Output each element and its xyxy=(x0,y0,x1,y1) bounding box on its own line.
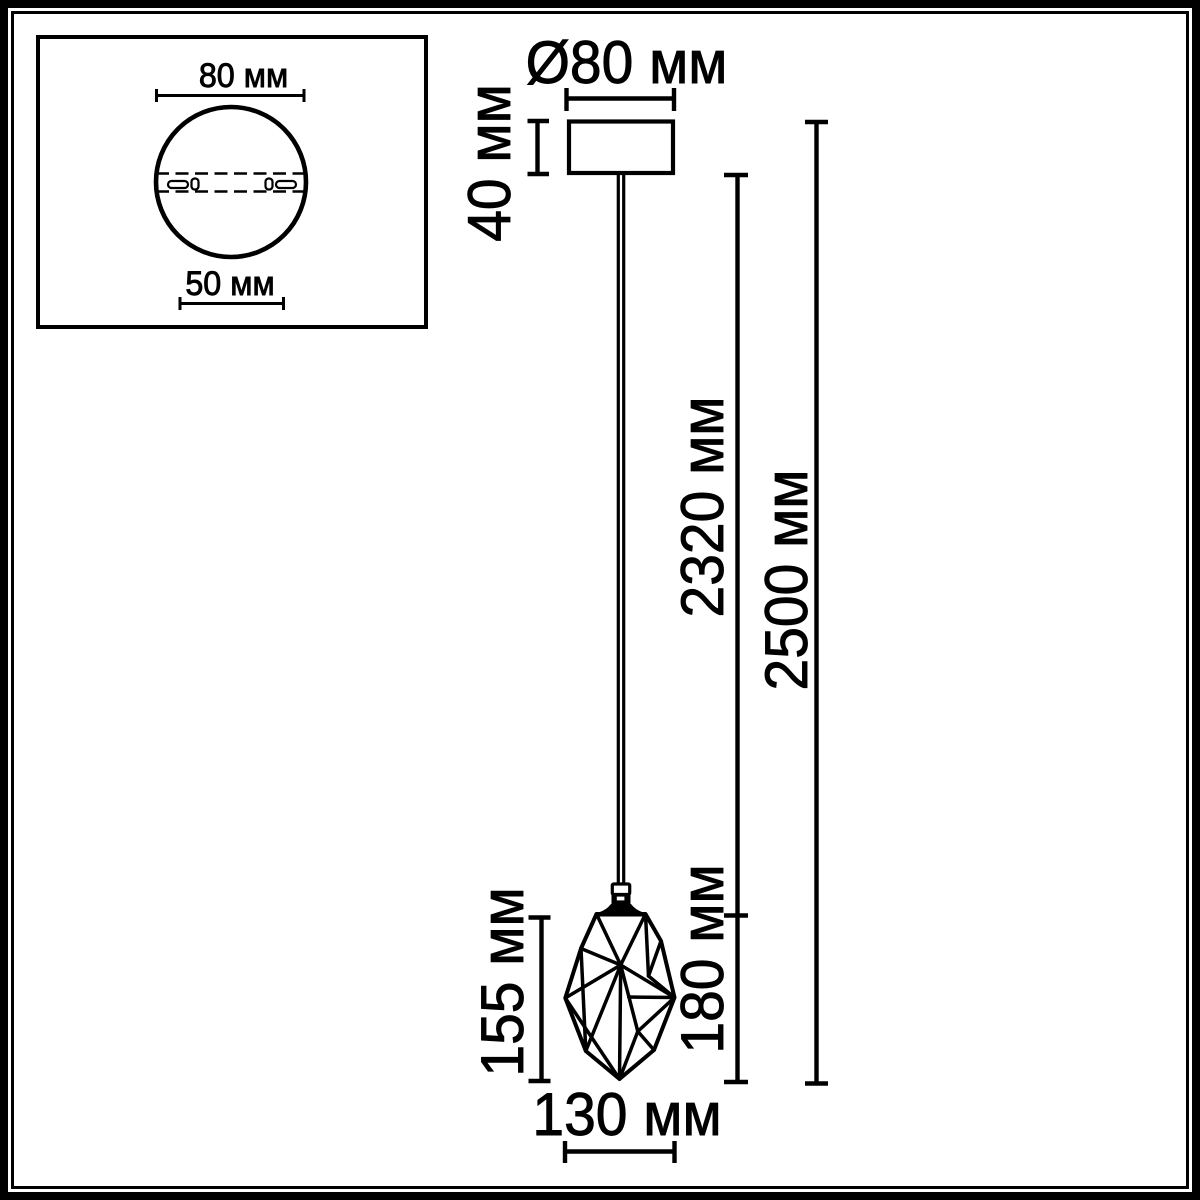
svg-text:Ø80 мм: Ø80 мм xyxy=(526,30,728,97)
svg-text:80 мм: 80 мм xyxy=(199,57,288,95)
svg-text:130 мм: 130 мм xyxy=(532,1082,721,1149)
svg-text:155 мм: 155 мм xyxy=(470,887,537,1076)
svg-text:2500 мм: 2500 мм xyxy=(754,470,821,691)
svg-text:2320 мм: 2320 мм xyxy=(670,397,737,618)
svg-text:40 мм: 40 мм xyxy=(457,84,524,242)
svg-text:180 мм: 180 мм xyxy=(670,864,737,1053)
svg-text:50 мм: 50 мм xyxy=(185,265,274,303)
